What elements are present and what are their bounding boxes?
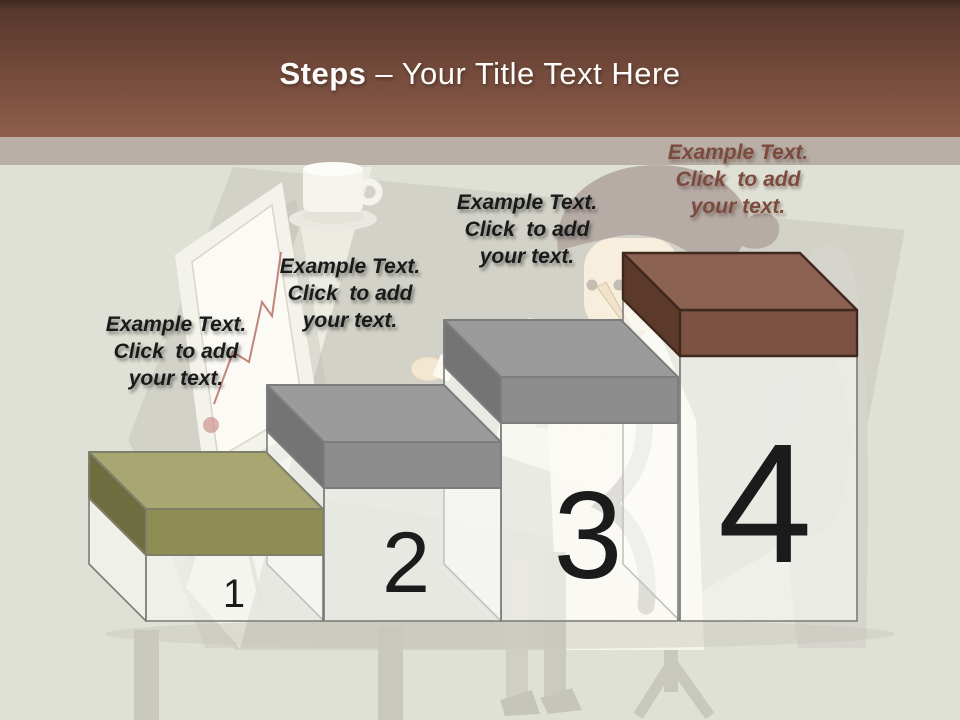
label-line: Click to add: [81, 338, 271, 365]
step-box-1: 1: [89, 452, 323, 621]
box-lid-front: [501, 377, 678, 423]
slide: Steps– Your Title Text Here: [0, 0, 960, 720]
label-line: Example Text.: [432, 189, 622, 216]
label-line: your text.: [432, 243, 622, 270]
box-lid-front: [680, 310, 857, 356]
boxes-shadow: [105, 619, 895, 649]
label-line: Click to add: [432, 216, 622, 243]
label-line: Click to add: [643, 166, 833, 193]
label-line: your text.: [643, 193, 833, 220]
step-label-3[interactable]: Example Text. Click to add your text.: [432, 189, 622, 270]
step-number-3: 3: [554, 467, 623, 605]
step-label-1[interactable]: Example Text. Click to add your text.: [81, 311, 271, 392]
label-line: Example Text.: [255, 253, 445, 280]
label-line: your text.: [255, 307, 445, 334]
box-lid-front: [146, 509, 323, 555]
step-label-2[interactable]: Example Text. Click to add your text.: [255, 253, 445, 334]
label-line: Example Text.: [643, 139, 833, 166]
label-line: Example Text.: [81, 311, 271, 338]
label-line: Click to add: [255, 280, 445, 307]
step-number-4: 4: [718, 409, 813, 599]
step-label-4[interactable]: Example Text. Click to add your text.: [643, 139, 833, 220]
step-number-1: 1: [223, 572, 245, 616]
step-number-2: 2: [382, 515, 430, 611]
label-line: your text.: [81, 365, 271, 392]
box-lid-front: [324, 442, 501, 488]
